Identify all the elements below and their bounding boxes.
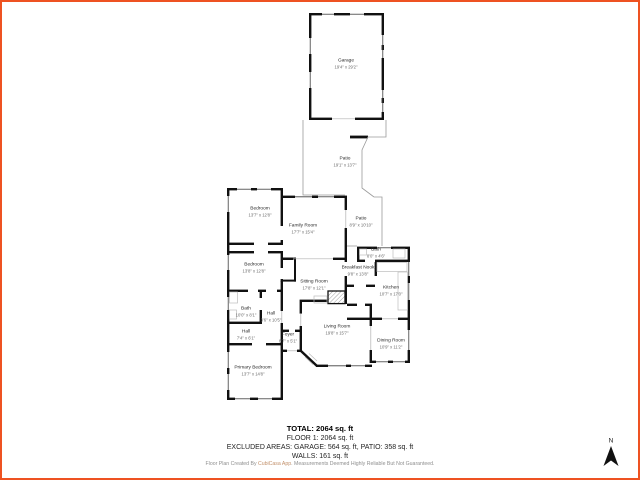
room-dims: 13'7" x 14'8" (234, 371, 271, 376)
room-dims: 8'9" x 10'10" (350, 222, 373, 227)
room-name: Bedroom (249, 207, 272, 213)
room-dims: 7'4" x 6'1" (237, 335, 255, 340)
room-dims: 19'1" x 13'7" (334, 162, 357, 167)
room-dims: 19'8" x 15'7" (324, 330, 351, 335)
room-label-breakfast-nook: Breakfast Nook 9'8" x 13'8" (342, 266, 375, 277)
room-dims: 8'0" x 4'6" (367, 253, 385, 258)
room-dims: 13'8" x 12'8" (243, 268, 266, 273)
disclaimer-pre: Floor Plan Created By (206, 461, 258, 467)
disclaimer-brand: CubiCasa App (258, 461, 291, 467)
floor-plan-page: { "frame": { "border_color": "#ee5222" }… (0, 0, 640, 480)
room-label-foyer: Foyer 6'7" x 5'1" (279, 333, 297, 344)
room-label-bath-2: Bath 8'0" x 4'6" (367, 248, 385, 259)
room-name: Dining Room (377, 339, 405, 345)
room-name: Sitting Room (300, 280, 327, 286)
room-dims: 10'0" x 8'1" (236, 312, 257, 317)
room-name: Breakfast Nook (342, 266, 375, 272)
room-dims: 3'6" x 10'5" (261, 317, 282, 322)
room-label-hall-2: Hall 7'4" x 6'1" (237, 330, 255, 341)
room-name: Living Room (324, 325, 351, 331)
room-label-dining-room: Dining Room 10'9" x 11'2" (377, 339, 405, 350)
door-openings (282, 119, 398, 351)
room-label-family-room: Family Room 17'7" x 15'4" (289, 224, 317, 235)
room-dims: 6'7" x 5'1" (279, 338, 297, 343)
room-dims: 9'8" x 13'8" (342, 271, 375, 276)
room-dims: 13'7" x 12'8" (249, 212, 272, 217)
room-dims: 17'8" x 12'1" (300, 285, 327, 290)
room-label-kitchen: Kitchen 10'7" x 17'0" (380, 286, 403, 297)
room-dims: 19'4" x 29'2" (335, 64, 358, 69)
room-dims: 17'7" x 15'4" (289, 229, 317, 234)
room-dims: 10'9" x 11'2" (377, 344, 405, 349)
summary-floor: FLOOR 1: 2064 sq. ft (0, 434, 640, 443)
room-dims: 10'7" x 17'0" (380, 291, 403, 296)
room-label-bedroom-2: Bedroom 13'8" x 12'8" (243, 263, 266, 274)
room-name: Primary Bedroom (234, 366, 271, 372)
room-label-sitting-room: Sitting Room 17'8" x 12'1" (300, 280, 327, 291)
compass-north-label: N (609, 438, 614, 445)
room-label-bedroom-1: Bedroom 13'7" x 12'8" (249, 207, 272, 218)
room-name: Family Room (289, 224, 317, 230)
disclaimer-post: . Measurements Deemed Highly Reliable Bu… (291, 461, 434, 467)
room-label-hall-1: Hall 3'6" x 10'5" (261, 312, 282, 323)
room-label-living-room: Living Room 19'8" x 15'7" (324, 325, 351, 336)
room-label-bath-1: Bath 10'0" x 8'1" (236, 307, 257, 318)
area-summary: TOTAL: 2064 sq. ft FLOOR 1: 2064 sq. ft … (0, 424, 640, 461)
disclaimer-text: Floor Plan Created By CubiCasa App. Meas… (0, 461, 640, 467)
summary-walls: WALLS: 161 sq. ft (0, 452, 640, 461)
summary-excluded: EXCLUDED AREAS: GARAGE: 564 sq. ft, PATI… (0, 443, 640, 452)
summary-total: TOTAL: 2064 sq. ft (0, 424, 640, 434)
room-label-primary-bedroom: Primary Bedroom 13'7" x 14'8" (234, 366, 271, 377)
room-label-patio-large: Patio 19'1" x 13'7" (334, 157, 357, 168)
room-label-patio-small: Patio 8'9" x 10'10" (350, 217, 373, 228)
floorplan-drawing (0, 0, 640, 480)
room-name: Bedroom (243, 263, 266, 269)
room-label-garage: Garage 19'4" x 29'2" (335, 59, 358, 70)
